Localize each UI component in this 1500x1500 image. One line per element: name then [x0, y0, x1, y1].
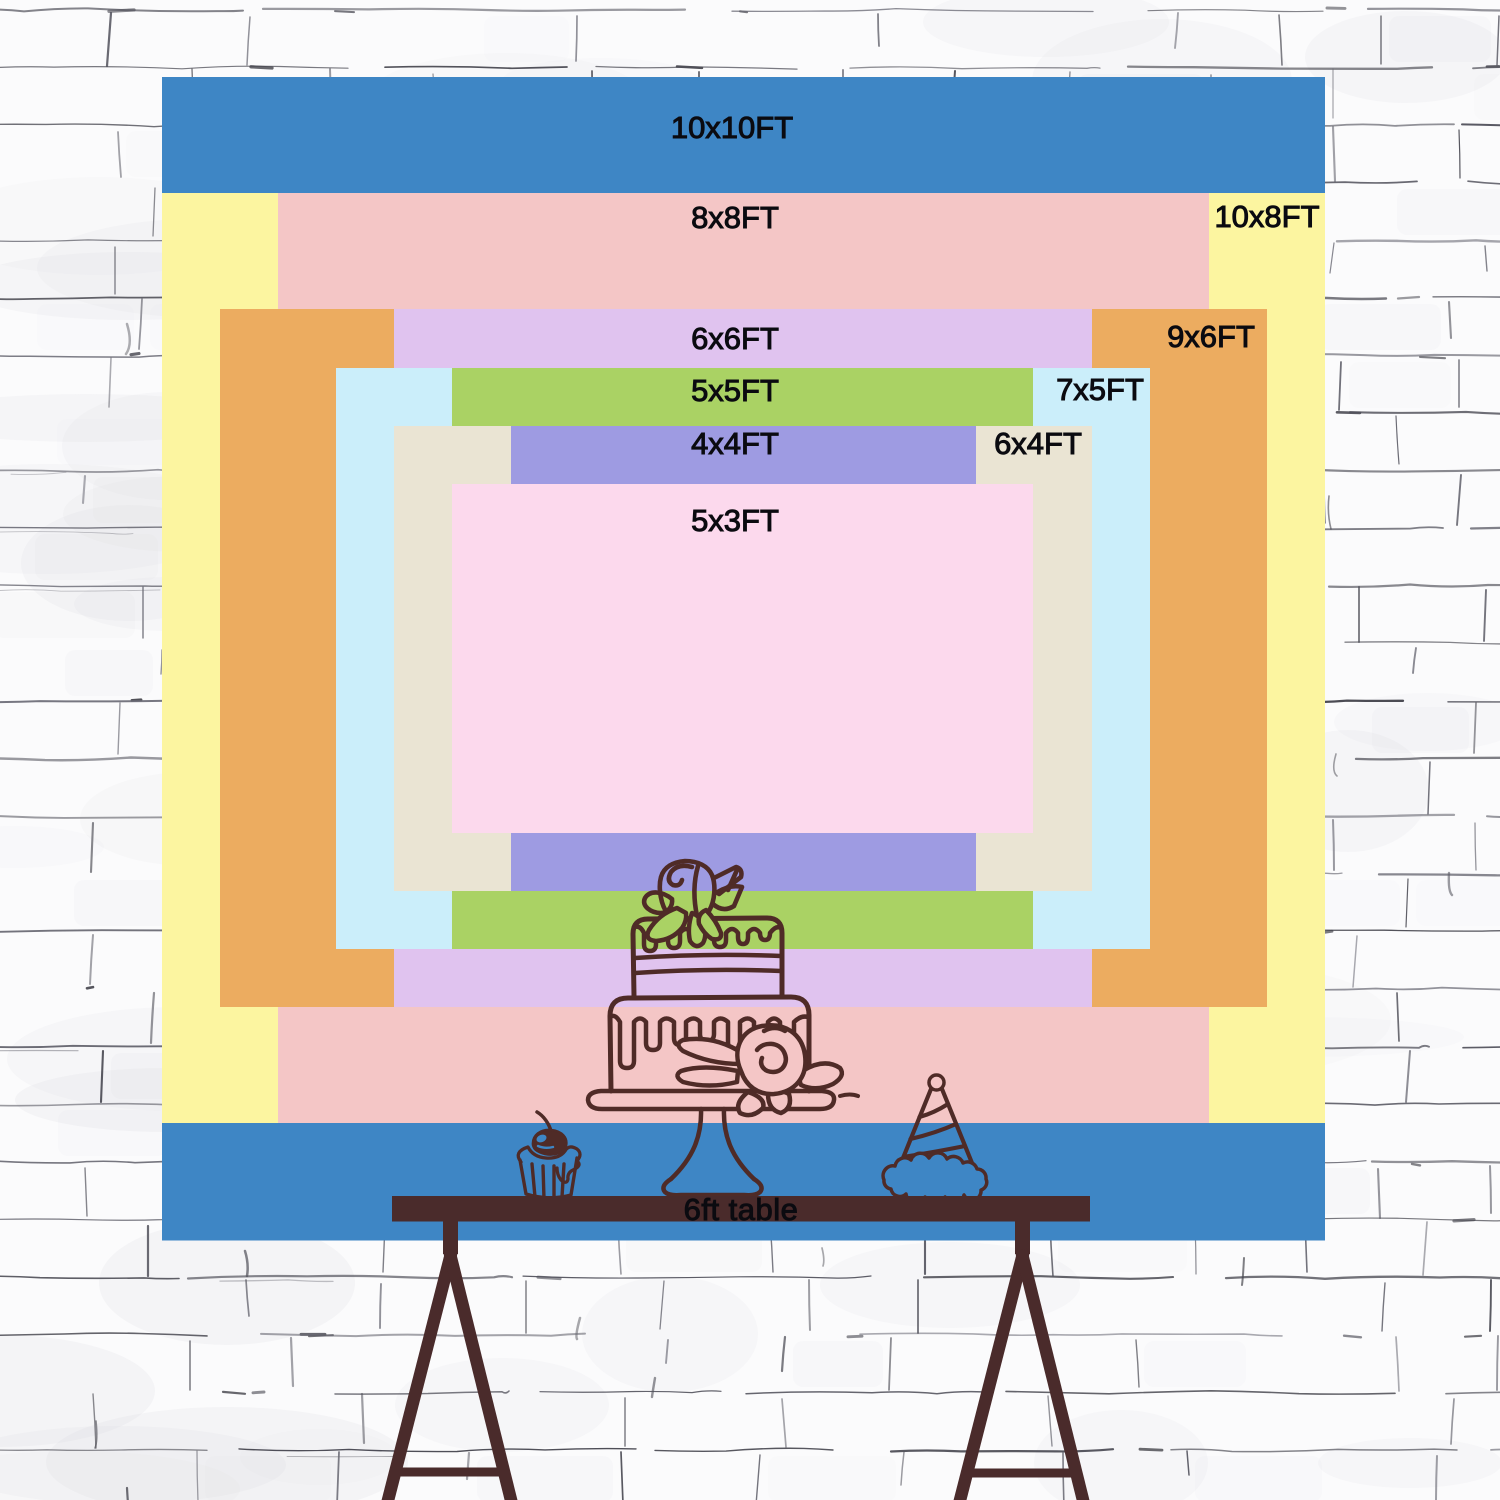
- svg-text:4x4FT: 4x4FT: [691, 426, 779, 461]
- svg-text:9x6FT: 9x6FT: [1167, 319, 1255, 354]
- svg-text:8x8FT: 8x8FT: [691, 200, 779, 235]
- svg-text:10x8FT: 10x8FT: [1214, 199, 1319, 234]
- svg-text:6x6FT: 6x6FT: [691, 321, 779, 356]
- svg-text:10x10FT: 10x10FT: [671, 110, 793, 145]
- svg-text:5x5FT: 5x5FT: [691, 373, 779, 408]
- svg-text:6ft table: 6ft table: [684, 1192, 799, 1227]
- svg-text:7x5FT: 7x5FT: [1056, 372, 1144, 407]
- svg-text:5x3FT: 5x3FT: [691, 503, 779, 538]
- svg-text:6x4FT: 6x4FT: [994, 426, 1082, 461]
